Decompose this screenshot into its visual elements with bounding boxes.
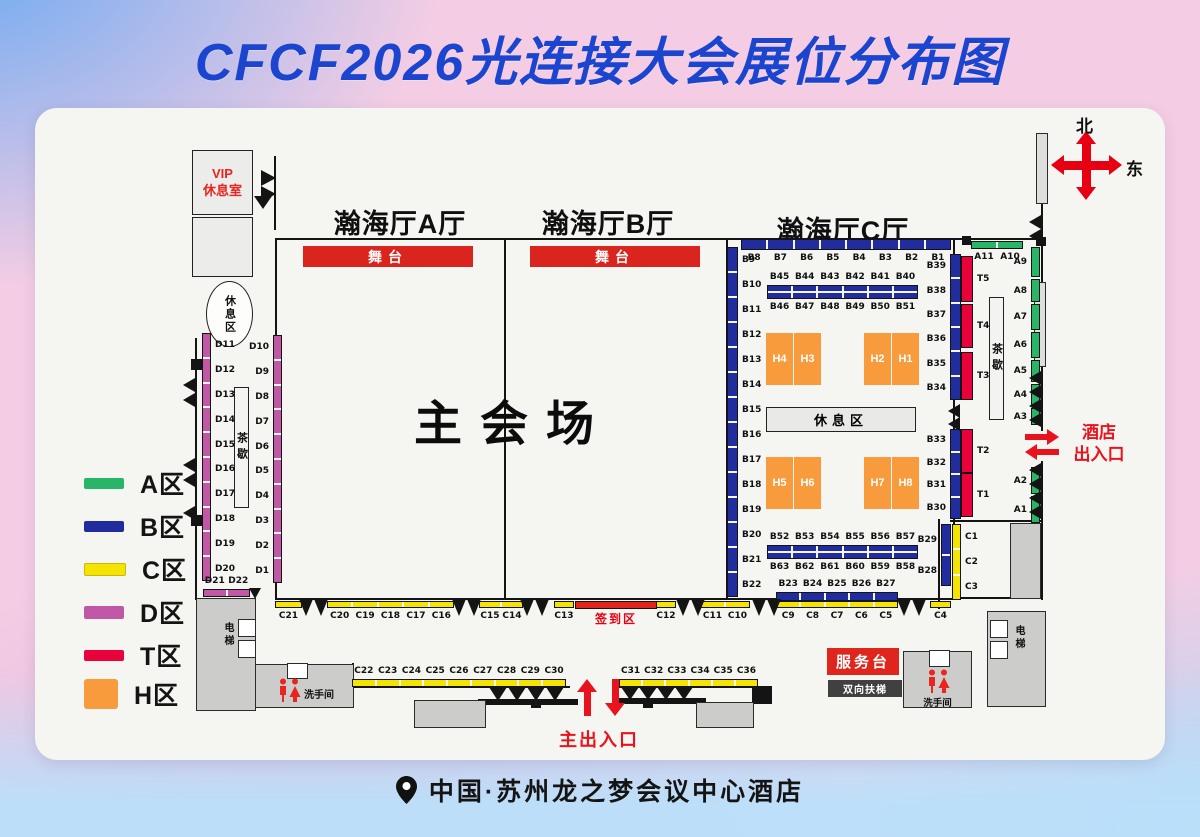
booth-divider: [274, 458, 281, 460]
booth-divider: [953, 548, 960, 550]
booth-label-B38: B38: [927, 286, 946, 296]
booth-label-B39: B39: [927, 261, 946, 271]
wall-left-outer: [195, 338, 197, 600]
booth-divider: [203, 357, 210, 359]
booth-divider: [351, 602, 353, 607]
booth-label-C22: C22: [354, 666, 373, 676]
door-slab-top-right: [1036, 133, 1048, 204]
booth-label-B2: B2: [905, 253, 918, 263]
booth-divider: [728, 321, 737, 323]
booth-label-A6: A6: [1014, 340, 1027, 350]
booth-divider: [951, 375, 960, 377]
door-mark: [1029, 505, 1041, 519]
booth-T2: [961, 429, 973, 473]
decor: [929, 670, 950, 694]
restroom-right-notch: [929, 650, 950, 667]
booth-label-C33: C33: [667, 666, 686, 676]
booth-label-B55: B55: [845, 532, 864, 542]
booth-label-D5: D5: [255, 466, 269, 476]
booth-label-C3: C3: [965, 582, 978, 592]
booth-label-B31: B31: [927, 480, 946, 490]
booth-divider: [470, 680, 472, 686]
floor-plan: VIP 休息室 休息区 茶歇 茶歇 休息区 电梯 洗手间 服务台 双向扶梯 洗手…: [0, 0, 1200, 837]
booth-label-C8: C8: [806, 611, 819, 621]
booth-label-C1: C1: [965, 532, 978, 542]
booth-T4: [961, 304, 973, 348]
door-mark: [520, 599, 534, 616]
booth-label-B58: B58: [896, 562, 915, 572]
door-mark: [676, 599, 690, 616]
booth-divider: [274, 359, 281, 361]
location-pin-icon: [396, 776, 417, 804]
wall-pillar: [531, 700, 541, 708]
booth-label-B24: B24: [803, 579, 822, 589]
booth-label-B3: B3: [879, 253, 892, 263]
elevator-left-label: 电梯: [220, 622, 235, 648]
booth-label-C27: C27: [473, 666, 492, 676]
booth-label-B13: B13: [742, 355, 761, 365]
booth-label-B54: B54: [820, 532, 839, 542]
decor: [939, 677, 950, 693]
booth-label-D20: D20: [215, 564, 235, 574]
booth-divider: [728, 396, 737, 398]
booth-divider: [494, 680, 496, 686]
decor: [929, 677, 935, 693]
main-venue-label: 主会场: [393, 392, 633, 446]
booth-divider: [724, 602, 726, 607]
booth-bar-c9-5: [776, 601, 898, 608]
legend-item-t: T区: [84, 639, 182, 671]
booth-divider: [402, 602, 404, 607]
door-mark: [183, 458, 195, 472]
booth-divider: [824, 593, 826, 600]
booth-label-D15: D15: [215, 440, 235, 450]
booth-divider: [517, 680, 519, 686]
booth-H5: H5: [766, 457, 793, 509]
hall-title-a: 瀚海厅A厅: [320, 202, 480, 241]
booth-bar-c4: [930, 601, 951, 608]
vip-label-1: VIP: [203, 166, 242, 182]
booth-label-C9: C9: [782, 611, 795, 621]
legend-item-b: B区: [84, 510, 185, 542]
booth-divider: [446, 680, 448, 686]
booth-divider: [203, 456, 210, 458]
booth-label-B50: B50: [871, 302, 890, 312]
booth-divider: [500, 602, 502, 607]
booth-label-B7: B7: [774, 253, 787, 263]
main-entrance-arrow-up-stem: [584, 691, 591, 716]
booth-H3: H3: [794, 333, 821, 385]
booth-label-A5: A5: [1014, 366, 1027, 376]
booth-label-B46: B46: [770, 302, 789, 312]
door-mark: [639, 687, 657, 700]
tea-break-right: 茶歇: [989, 297, 1004, 420]
door-mark: [546, 687, 564, 701]
door-mark: [489, 687, 507, 701]
booth-label-B61: B61: [820, 562, 839, 572]
booth-label-B28: B28: [918, 566, 937, 576]
escalator-label: 双向扶梯: [843, 681, 887, 696]
booth-divider: [873, 593, 875, 600]
booth-divider: [951, 302, 960, 304]
booth-centerline: [768, 291, 917, 293]
booth-H7: H7: [864, 457, 891, 509]
door-mark: [261, 186, 276, 202]
door-mark: [467, 599, 481, 616]
elevator-right-label: 电梯: [1011, 625, 1026, 651]
rest-box-label: 休息区: [814, 410, 868, 429]
booth-label-B47: B47: [795, 302, 814, 312]
booth-label-D19: D19: [215, 539, 235, 549]
wall-right-lower: [1041, 461, 1043, 600]
door-mark: [767, 599, 781, 616]
legend-item-c: C区: [84, 553, 187, 585]
booth-label-C12: C12: [656, 611, 675, 621]
booth-label-D22: D22: [228, 576, 248, 586]
booth-label-B41: B41: [871, 272, 890, 282]
booth-label-B35: B35: [927, 359, 946, 369]
booth-label-B52: B52: [770, 532, 789, 542]
booth-label-A4: A4: [1014, 390, 1027, 400]
door-mark: [621, 687, 639, 700]
booth-divider: [951, 451, 960, 453]
elevator-left-cab-1: [238, 619, 256, 637]
booth-divider: [951, 277, 960, 279]
door-mark: [912, 599, 926, 616]
booth-H4: H4: [766, 333, 793, 385]
booth-divider: [728, 371, 737, 373]
hotel-entrance-label: 酒店 出入口: [1066, 422, 1132, 466]
compass-east-label: 东: [1126, 155, 1143, 180]
door-mark: [1029, 491, 1041, 505]
wall-pillar: [1036, 237, 1046, 246]
booth-label-D1: D1: [255, 566, 269, 576]
decor: [929, 670, 935, 676]
booth-label-B34: B34: [927, 383, 946, 393]
booth-label-D7: D7: [255, 417, 269, 427]
booth-label-A3: A3: [1014, 412, 1027, 422]
legend-label-a: A区: [140, 465, 185, 501]
booth-divider: [871, 240, 873, 249]
booth-label-B37: B37: [927, 310, 946, 320]
booth-divider: [399, 680, 401, 686]
booth-label-D10: D10: [249, 342, 269, 352]
wall-corner-strip-v: [938, 519, 940, 609]
door-mark: [657, 687, 675, 700]
checkin-label: 签到区: [575, 610, 657, 627]
booth-divider: [793, 240, 795, 249]
booth-label-B30: B30: [927, 503, 946, 513]
legend-swatch-b: [84, 521, 124, 532]
door-mark: [183, 393, 195, 407]
restroom-right-icon: [925, 669, 951, 695]
door-mark: [1029, 477, 1041, 491]
booth-label-A8: A8: [1014, 286, 1027, 296]
booth-label-D17: D17: [215, 489, 235, 499]
booth-label-C20: C20: [330, 611, 349, 621]
booth-label-B18: B18: [742, 480, 761, 490]
legend-label-c: C区: [142, 551, 187, 587]
booth-divider: [203, 506, 210, 508]
hotel-entrance-line1: 酒店: [1066, 422, 1132, 444]
booth-label-C10: C10: [728, 611, 747, 621]
door-mark: [508, 687, 526, 701]
decor: [292, 679, 298, 685]
tea-right-label: 茶歇: [989, 343, 1005, 375]
booth-divider: [274, 433, 281, 435]
booth-divider: [848, 593, 850, 600]
hotel-entrance-arrow-left-stem: [1037, 449, 1059, 455]
booth-divider: [203, 382, 210, 384]
booth-label-B29: B29: [918, 535, 937, 545]
booth-label-C36: C36: [737, 666, 756, 676]
booth-label-A9: A9: [1014, 257, 1027, 267]
stage-a-label: 舞台: [368, 247, 408, 267]
booth-divider: [664, 680, 666, 686]
booth-label-B32: B32: [927, 458, 946, 468]
booth-label-B36: B36: [927, 334, 946, 344]
booth-label-B26: B26: [852, 579, 871, 589]
legend-label-t: T区: [140, 637, 182, 673]
elevator-right-cab-2: [990, 641, 1008, 659]
compass-tip-e: [1109, 155, 1122, 175]
booth-label-D13: D13: [215, 390, 235, 400]
booth-label-B45: B45: [770, 272, 789, 282]
rest-oval-label: 休息区: [222, 295, 238, 334]
booth-divider: [951, 326, 960, 328]
decor: [402, 782, 410, 790]
legend-item-a: A区: [84, 467, 185, 499]
booth-A8: [1031, 279, 1040, 302]
booth-divider: [824, 602, 826, 607]
compass-bar-h: [1063, 161, 1110, 170]
booth-divider: [203, 481, 210, 483]
footer: 中国·苏州龙之梦会议中心酒店: [0, 772, 1200, 808]
booth-label-B44: B44: [795, 272, 814, 282]
booth-divider: [428, 602, 430, 607]
compass-tip-s: [1076, 187, 1096, 200]
legend-swatch-t: [84, 650, 124, 661]
booth-label-C28: C28: [497, 666, 516, 676]
booth-label-C29: C29: [521, 666, 540, 676]
booth-divider: [203, 555, 210, 557]
booth-label-B56: B56: [871, 532, 890, 542]
booth-H1: H1: [892, 333, 919, 385]
legend-swatch-c: [84, 563, 126, 576]
service-desk: 服务台: [827, 648, 899, 675]
booth-label-B48: B48: [820, 302, 839, 312]
booth-H2: H2: [864, 333, 891, 385]
booth-label-T4: T4: [977, 321, 989, 331]
booth-divider: [728, 571, 737, 573]
booth-bar-b23-27: [776, 592, 898, 601]
hotel-entrance-line2: 出入口: [1066, 444, 1132, 466]
stage-a: 舞台: [303, 246, 473, 267]
booth-divider: [942, 554, 950, 556]
door-mark: [948, 404, 960, 418]
legend-label-b: B区: [140, 508, 185, 544]
booth-T5: [961, 256, 973, 302]
booth-label-D16: D16: [215, 464, 235, 474]
vip-annex-room: [192, 217, 253, 277]
booth-bar-c13: [554, 601, 574, 608]
decor: [941, 670, 947, 676]
booth-divider: [422, 680, 424, 686]
booth-divider: [226, 590, 228, 596]
booth-divider: [641, 680, 643, 686]
booth-label-A2: A2: [1014, 476, 1027, 486]
booth-label-B17: B17: [742, 455, 761, 465]
booth-label-T1: T1: [977, 490, 989, 500]
door-mark: [1029, 385, 1041, 399]
booth-divider: [728, 296, 737, 298]
booth-label-C18: C18: [381, 611, 400, 621]
booth-label-B57: B57: [896, 532, 915, 542]
booth-label-C23: C23: [378, 666, 397, 676]
booth-label-C25: C25: [426, 666, 445, 676]
booth-divider: [728, 346, 737, 348]
booth-divider: [541, 680, 543, 686]
tea-break-left: 茶歇: [234, 387, 249, 508]
booth-label-B42: B42: [845, 272, 864, 282]
booth-label-C26: C26: [449, 666, 468, 676]
main-entrance-arrow-down-stem: [612, 679, 619, 704]
door-mark: [691, 599, 705, 616]
booth-bar-c20-16: [327, 601, 454, 608]
booth-T1: [961, 473, 973, 517]
booth-label-C13: C13: [554, 611, 573, 621]
booth-divider: [951, 350, 960, 352]
booth-label-B10: B10: [742, 280, 761, 290]
door-mark: [527, 687, 545, 701]
legend-swatch-d: [84, 606, 124, 619]
booth-divider: [203, 431, 210, 433]
booth-divider: [375, 680, 377, 686]
booth-divider: [924, 240, 926, 249]
booth-divider: [711, 680, 713, 686]
legend-item-h: H区: [84, 678, 179, 710]
booth-divider: [274, 557, 281, 559]
rest-area-box: 休息区: [766, 407, 916, 432]
restroom-left-notch: [287, 663, 308, 679]
booth-label-B21: B21: [742, 555, 761, 565]
booth-label-B49: B49: [845, 302, 864, 312]
corner-block-br: [1010, 523, 1041, 599]
booth-divider: [734, 680, 736, 686]
compass-tip-w: [1051, 155, 1064, 175]
booth-divider: [728, 421, 737, 423]
legend-swatch-a: [84, 478, 124, 489]
booth-label-C35: C35: [714, 666, 733, 676]
hotel-entrance-arrow-right-stem: [1025, 434, 1047, 440]
booth-divider: [203, 530, 210, 532]
restroom-left-icon: [276, 678, 302, 704]
booth-divider: [274, 532, 281, 534]
booth-divider: [845, 240, 847, 249]
decor: [280, 686, 286, 702]
booth-bar-c1-3: [952, 524, 961, 600]
compass-north-label: 北: [1076, 112, 1093, 137]
booth-divider: [274, 483, 281, 485]
main-entrance-arrow-up-head: [577, 679, 597, 692]
booth-label-B59: B59: [871, 562, 890, 572]
booth-label-D4: D4: [255, 491, 269, 501]
booth-divider: [728, 271, 737, 273]
booth-label-B19: B19: [742, 505, 761, 515]
booth-label-D9: D9: [255, 367, 269, 377]
booth-A9: [1031, 247, 1040, 277]
booth-divider: [728, 496, 737, 498]
booth-label-B27: B27: [876, 579, 895, 589]
booth-label-B14: B14: [742, 380, 761, 390]
booth-H6: H6: [794, 457, 821, 509]
booth-label-C15: C15: [480, 611, 499, 621]
booth-label-B20: B20: [742, 530, 761, 540]
booth-A6: [1031, 332, 1040, 358]
escalator: 双向扶梯: [828, 680, 902, 697]
wall-pillar: [962, 236, 971, 245]
door-mark: [249, 588, 261, 599]
door-mark: [183, 473, 195, 487]
booth-divider: [274, 508, 281, 510]
booth-divider: [728, 546, 737, 548]
door-mark: [261, 170, 276, 186]
booth-label-D18: D18: [215, 514, 235, 524]
booth-label-C6: C6: [855, 611, 868, 621]
booth-label-B51: B51: [896, 302, 915, 312]
legend-swatch-h: [84, 679, 118, 709]
booth-divider: [996, 242, 998, 248]
center-block-2: [696, 702, 754, 728]
booth-label-A11: A11: [974, 252, 994, 262]
booth-divider: [728, 471, 737, 473]
decor: [290, 686, 301, 702]
booth-bar-c12: [656, 601, 676, 608]
booth-divider: [951, 496, 960, 498]
elevator-right-cab-1: [990, 620, 1008, 638]
booth-label-C24: C24: [402, 666, 421, 676]
booth-label-B15: B15: [742, 405, 761, 415]
booth-label-B62: B62: [795, 562, 814, 572]
booth-divider: [688, 680, 690, 686]
booth-label-B23: B23: [778, 579, 797, 589]
booth-label-D6: D6: [255, 442, 269, 452]
booth-label-B63: B63: [770, 562, 789, 572]
booth-label-C14: C14: [502, 611, 521, 621]
legend-label-d: D区: [140, 594, 185, 630]
booth-label-B9: B9: [742, 255, 755, 265]
wall-bottom-ext: [955, 597, 1012, 599]
legend-label-h: H区: [134, 676, 179, 712]
tea-left-label: 茶歇: [234, 432, 250, 464]
booth-label-D2: D2: [255, 541, 269, 551]
door-mark: [675, 687, 693, 700]
booth-divider: [819, 240, 821, 249]
booth-label-C21: C21: [279, 611, 298, 621]
booth-label-D11: D11: [215, 340, 235, 350]
vip-lounge: VIP 休息室: [192, 150, 253, 215]
booth-label-B53: B53: [795, 532, 814, 542]
booth-label-T2: T2: [977, 446, 989, 456]
center-block-1: [414, 700, 486, 728]
door-mark: [1029, 463, 1041, 477]
booth-H8: H8: [892, 457, 919, 509]
booth-label-C7: C7: [831, 611, 844, 621]
booth-label-C30: C30: [545, 666, 564, 676]
door-mark: [299, 599, 313, 616]
restroom-right-label: 洗手间: [903, 695, 972, 709]
booth-label-B60: B60: [845, 562, 864, 572]
